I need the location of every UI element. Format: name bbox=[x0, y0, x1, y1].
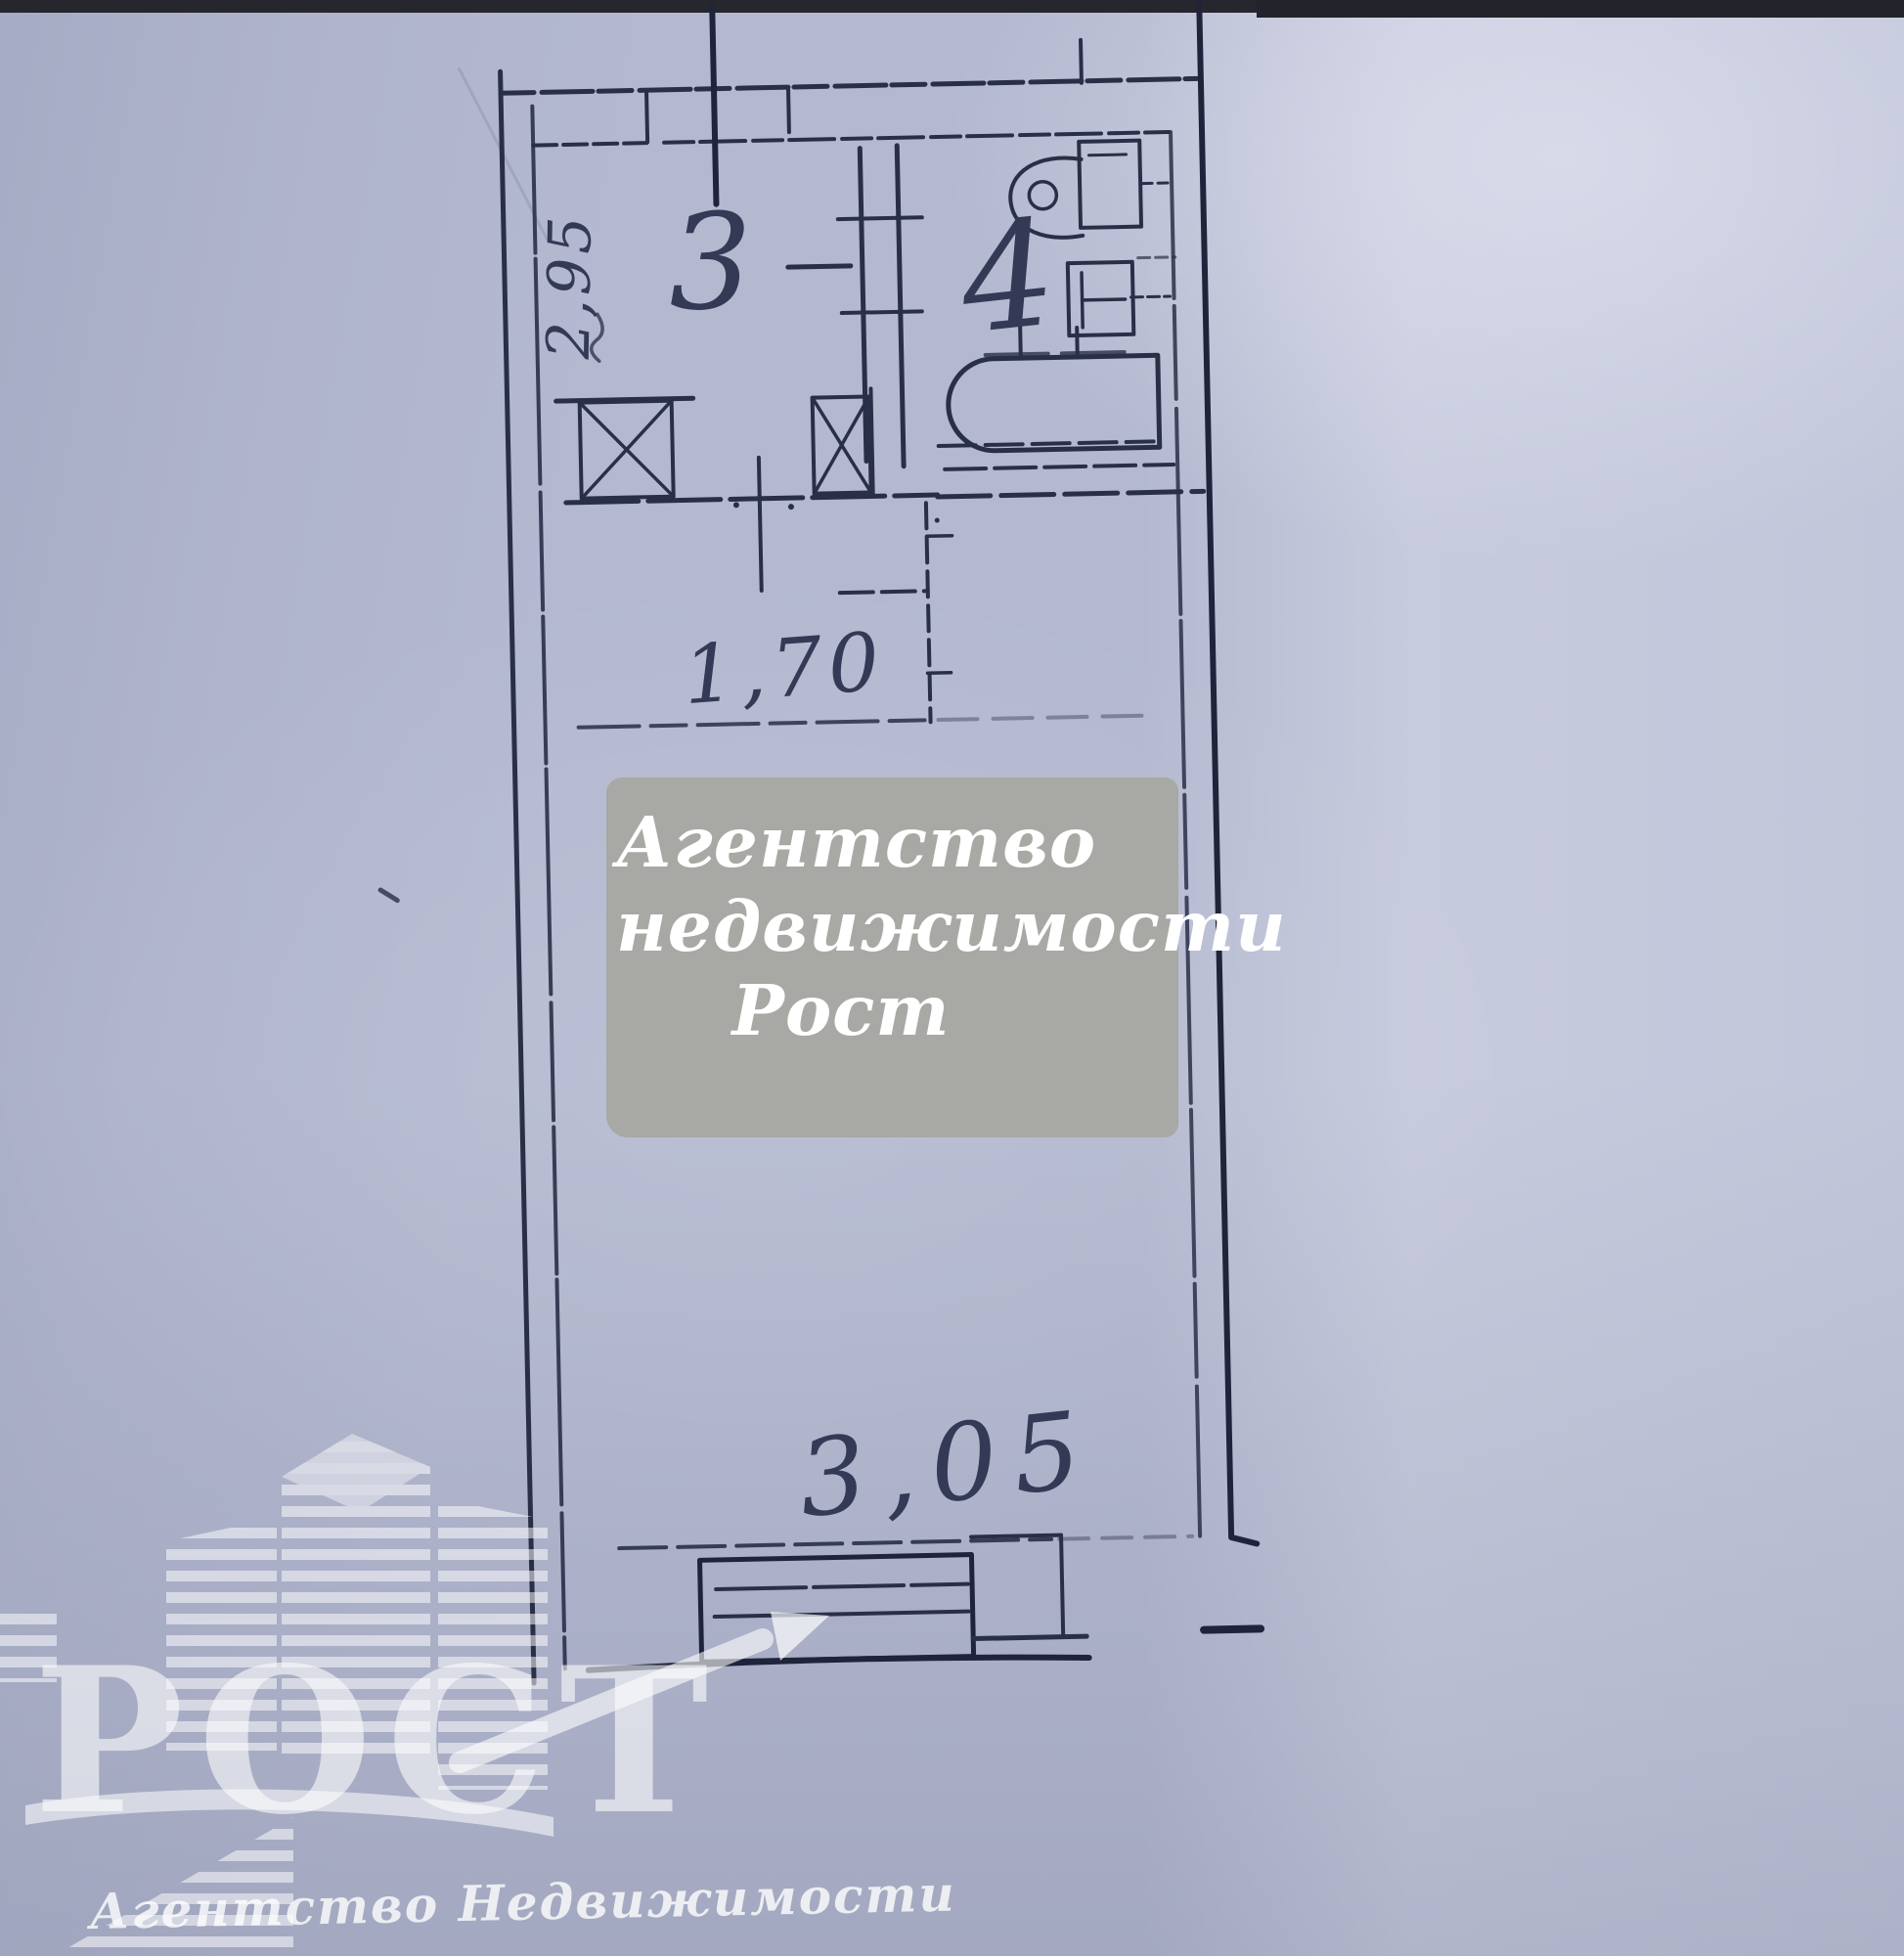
vent2-wall-line bbox=[870, 388, 872, 494]
wall-tick-lower bbox=[842, 311, 922, 313]
partition-line-above-plan bbox=[712, 7, 716, 204]
left-outer-wall bbox=[501, 71, 535, 1683]
door-post-mark bbox=[759, 458, 762, 591]
bottom-section bbox=[586, 1533, 1195, 1670]
room-bottom-inner-wall bbox=[619, 1539, 1051, 1548]
bath-bottom-wall-2 bbox=[945, 465, 1173, 469]
dimension-hallway-length: 1,70 bbox=[680, 615, 888, 723]
partition-dot bbox=[935, 517, 940, 522]
top-inner-wall-left bbox=[533, 143, 646, 145]
partition-tick-lower bbox=[928, 673, 952, 674]
window-frame bbox=[699, 1555, 973, 1663]
bathtub-outline bbox=[948, 355, 1160, 451]
toilet-tank-line bbox=[1088, 155, 1126, 156]
window-pane-line-2 bbox=[715, 1612, 969, 1617]
balcony-door-side bbox=[1061, 1535, 1063, 1637]
wall-tick-upper bbox=[838, 217, 922, 219]
dimension-hall-width: 2,95 bbox=[535, 212, 605, 361]
sink-wall-tie-2 bbox=[1138, 257, 1175, 258]
closet-shelf-dash bbox=[840, 591, 928, 593]
room-divider-wall-b bbox=[897, 146, 904, 467]
partition-tick-upper bbox=[927, 536, 952, 537]
vent2-cross bbox=[813, 396, 871, 493]
agency-watermark-line-1: Агентство bbox=[616, 801, 1066, 885]
vent-shaft-icon bbox=[556, 398, 695, 499]
main-room-top-wall bbox=[579, 720, 933, 728]
agency-watermark-line-2: недвижимости bbox=[616, 885, 1066, 969]
sink-wall-tie bbox=[1131, 296, 1171, 297]
window-pane-line-1 bbox=[716, 1584, 968, 1589]
balcony-door-bottom bbox=[973, 1636, 1086, 1638]
main-room-top-wall-faint bbox=[939, 716, 1148, 720]
agency-watermark-line-3: Рост bbox=[616, 969, 1066, 1053]
room-bottom-inner-wall-faint bbox=[1059, 1536, 1192, 1539]
bottom-outer-wall bbox=[589, 1654, 1089, 1669]
balcony-door-icon bbox=[971, 1534, 1086, 1638]
top-wall-notch bbox=[646, 92, 647, 142]
top-stub-right bbox=[1081, 40, 1082, 83]
balcony-door-top bbox=[971, 1535, 1061, 1537]
right-bottom-wall-blob bbox=[1204, 1628, 1261, 1629]
right-outer-wall bbox=[1199, 0, 1257, 1544]
room-label-3: 3 bbox=[667, 185, 754, 340]
dimension-room-width: 3,05 bbox=[793, 1388, 1102, 1541]
dimension-dash bbox=[788, 266, 851, 267]
entry-door-stub bbox=[788, 89, 789, 132]
vent1-cross bbox=[580, 401, 674, 499]
top-outer-wall bbox=[501, 78, 1197, 93]
toilet-wall-tie bbox=[1142, 183, 1173, 184]
window-icon bbox=[699, 1555, 973, 1663]
door-dot-left bbox=[733, 502, 739, 508]
door-dot-right bbox=[788, 504, 794, 510]
bath-bottom-wall-3 bbox=[938, 491, 1204, 497]
room-label-4: 4 bbox=[952, 188, 1064, 367]
agency-watermark-box: Агентство недвижимости Рост bbox=[606, 778, 1178, 1137]
sink-inner-tick bbox=[1083, 299, 1126, 300]
stray-pen-mark bbox=[380, 890, 397, 901]
